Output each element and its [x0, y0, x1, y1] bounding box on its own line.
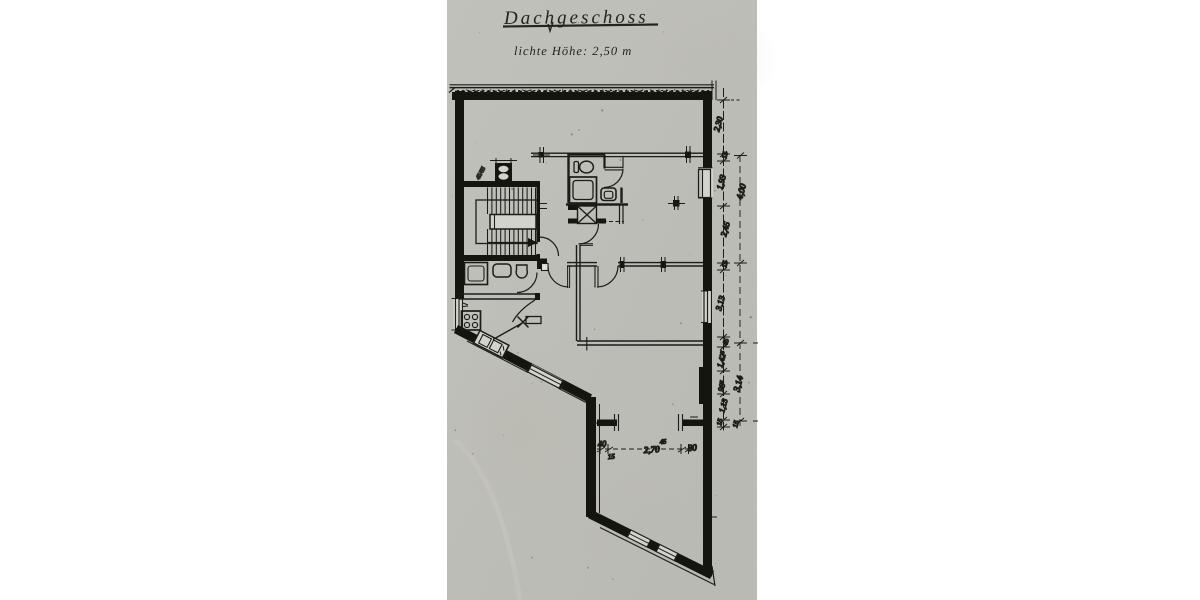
- svg-text:40: 40: [597, 438, 607, 449]
- svg-text:2,70: 2,70: [643, 444, 660, 455]
- svg-text:lichte Höhe: 2,50 m: lichte Höhe: 2,50 m: [514, 44, 632, 58]
- svg-text:80: 80: [687, 442, 697, 453]
- svg-text:15: 15: [607, 452, 615, 461]
